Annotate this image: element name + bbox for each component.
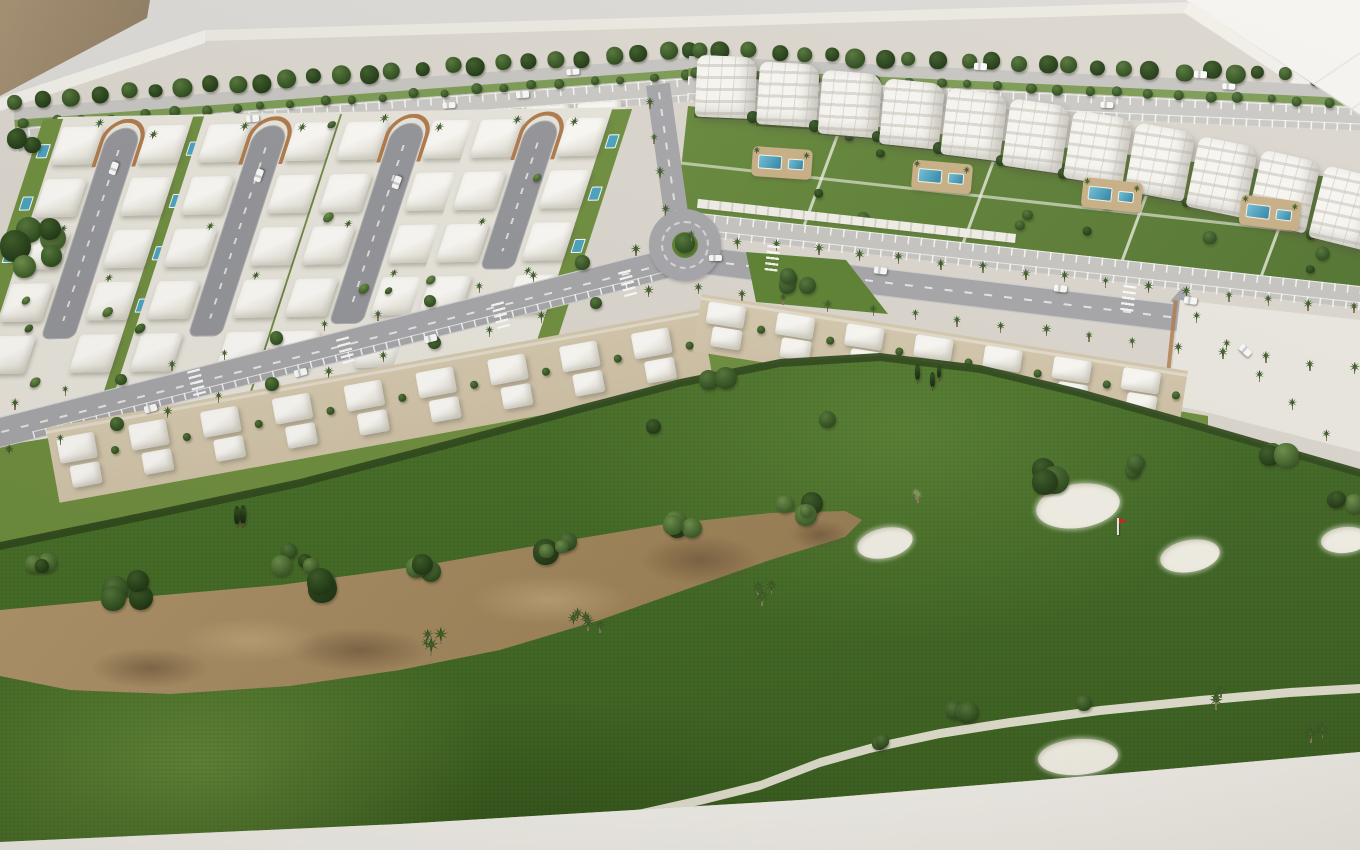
apartment-block (940, 88, 1008, 162)
tree (24, 137, 41, 154)
tree (1014, 219, 1026, 231)
palm-tree (1085, 331, 1093, 339)
tree (1232, 92, 1243, 103)
palm-tree (913, 159, 922, 168)
flag-cloth (1119, 518, 1127, 524)
tree (520, 52, 537, 69)
tree-trunk (242, 523, 243, 528)
tree (539, 544, 553, 558)
tree (646, 419, 661, 434)
townhouse (141, 448, 174, 475)
townhouse (428, 396, 461, 423)
tree (1011, 55, 1028, 72)
car (1183, 296, 1197, 304)
palm-tree (1128, 337, 1137, 346)
townhouse (415, 366, 457, 398)
palm-tree (694, 282, 704, 292)
tree (962, 79, 970, 87)
townhouse (487, 353, 529, 385)
conifer-tree (930, 372, 935, 386)
tree (382, 62, 400, 80)
townhouse (271, 392, 313, 424)
palm-tree (1132, 184, 1141, 193)
townhouse (500, 383, 533, 410)
car (566, 68, 579, 75)
townhouse (644, 357, 677, 384)
tree (814, 189, 824, 199)
palm-tree (1083, 177, 1092, 186)
tree (265, 377, 279, 391)
model-platform (0, 0, 1360, 850)
roundabout (649, 209, 721, 281)
palm-tree (737, 289, 747, 299)
tree (590, 297, 602, 309)
tree (7, 129, 27, 149)
tree (826, 336, 835, 345)
apartment-block (756, 62, 820, 129)
townhouse (128, 419, 170, 451)
tree (270, 331, 284, 345)
tree (1082, 226, 1092, 236)
tree-trunk (939, 377, 940, 382)
tree (415, 62, 430, 77)
car (245, 114, 258, 121)
car (1222, 83, 1235, 90)
tree (127, 570, 149, 592)
tree (663, 515, 683, 535)
tree (682, 518, 702, 538)
tree (398, 393, 407, 402)
tree (876, 149, 885, 158)
tree (115, 374, 126, 385)
tree (495, 53, 512, 70)
tree (1250, 65, 1264, 79)
pool-deck (751, 146, 813, 180)
tree (1330, 491, 1346, 507)
townhouse (710, 326, 743, 350)
tree (101, 586, 126, 611)
tree (13, 255, 36, 278)
townhouse (357, 409, 390, 436)
light-patch (470, 575, 630, 625)
wet-patch (90, 648, 210, 688)
townhouse (631, 327, 673, 359)
tree-trunk (237, 524, 238, 529)
tree (780, 268, 796, 284)
apartment-block (1001, 98, 1070, 174)
tree (555, 540, 568, 553)
pool-deck (911, 159, 973, 194)
apartment-block (1063, 110, 1133, 188)
palm-tree (996, 321, 1005, 330)
car (973, 62, 986, 69)
car (873, 266, 887, 274)
townhouse (343, 379, 385, 411)
tree (110, 417, 124, 431)
tree (254, 419, 263, 428)
swimming-pool (947, 173, 964, 185)
tree (895, 347, 904, 356)
tree (1205, 91, 1216, 102)
car (709, 255, 722, 262)
tree (757, 325, 766, 334)
tree (1076, 695, 1092, 711)
tree (1315, 246, 1330, 261)
palm-tree (643, 285, 654, 296)
apartment-block (879, 78, 945, 149)
apartment-block (817, 69, 882, 138)
townhouse (572, 370, 605, 397)
swimming-pool (1117, 191, 1134, 204)
palm-tree (1041, 324, 1052, 335)
swimming-pool (758, 154, 783, 170)
tree (819, 411, 836, 428)
tree-trunk (917, 379, 918, 384)
tree (445, 57, 462, 74)
tree (772, 45, 788, 61)
tree (1278, 67, 1292, 81)
swimming-pool (917, 168, 942, 184)
palm-tree (952, 315, 961, 324)
conifer-tree (915, 364, 920, 379)
conifer-tree (234, 506, 240, 524)
townhouse (69, 461, 102, 488)
pool-deck (1081, 177, 1144, 213)
tree (993, 81, 1002, 90)
tree-trunk (932, 386, 933, 391)
tree (1089, 60, 1105, 76)
palm-tree (962, 166, 971, 175)
tree (326, 406, 335, 415)
tree (675, 233, 695, 253)
tree (1102, 380, 1111, 389)
conifer-tree (240, 505, 246, 524)
tree (901, 52, 916, 67)
townhouse (559, 340, 601, 372)
wet-patch (640, 535, 760, 585)
architectural-model-photo (0, 0, 1360, 850)
palm-tree (630, 244, 641, 255)
tree (1039, 55, 1058, 74)
tree (470, 380, 479, 389)
swimming-pool (1275, 209, 1292, 222)
tree (575, 255, 589, 269)
townhouse (285, 422, 318, 449)
tree (41, 245, 63, 267)
tree (1171, 391, 1180, 400)
tree (271, 555, 292, 576)
tree (715, 367, 737, 389)
tree (1143, 88, 1154, 99)
tree (305, 68, 321, 84)
swimming-pool (1245, 203, 1271, 220)
tree (825, 47, 840, 62)
townhouse (200, 405, 242, 437)
tree (959, 702, 979, 722)
light-patch (180, 618, 320, 662)
tree (541, 367, 550, 376)
palm-tree (802, 151, 811, 160)
car (1100, 101, 1113, 108)
tree (1274, 443, 1298, 467)
tree (1112, 87, 1122, 97)
townhouse (56, 432, 98, 464)
tree (1060, 56, 1078, 74)
tree (35, 559, 49, 573)
tree (307, 568, 334, 595)
tree (1022, 209, 1033, 220)
palm-tree (911, 309, 919, 317)
tree (182, 432, 191, 441)
car (515, 90, 528, 97)
tree (39, 218, 61, 240)
tree (1202, 230, 1217, 245)
palm-tree (1241, 194, 1250, 203)
car (1053, 284, 1067, 292)
tree (110, 445, 119, 454)
swimming-pool (788, 158, 805, 170)
tree (1116, 61, 1133, 78)
swimming-pool (1087, 186, 1112, 202)
tree (1291, 96, 1302, 107)
tree (613, 354, 622, 363)
tree (1033, 369, 1042, 378)
crosswalk (764, 244, 780, 271)
tree (740, 42, 757, 59)
apartment-block (695, 55, 758, 120)
palm-tree (753, 146, 762, 155)
car (1193, 70, 1206, 77)
tree (1345, 494, 1360, 513)
tree (1032, 469, 1058, 495)
townhouse (213, 435, 246, 462)
